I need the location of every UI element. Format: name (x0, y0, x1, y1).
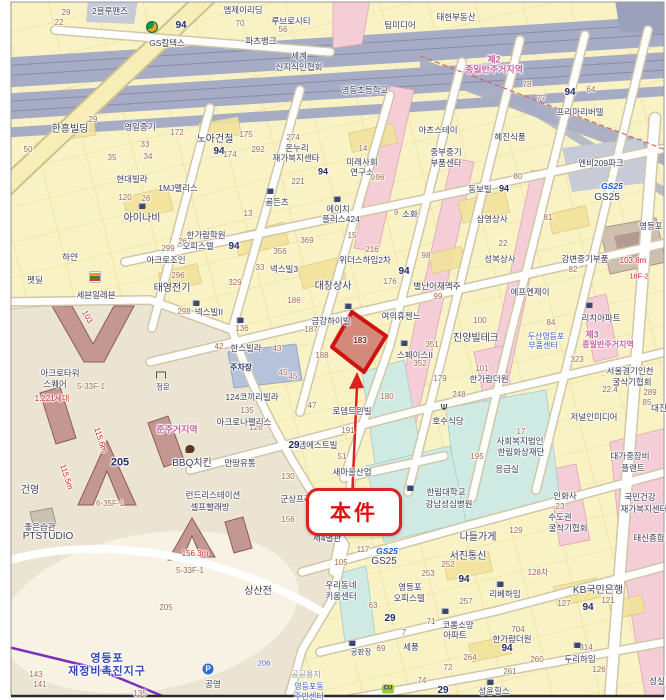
map-canvas[interactable] (0, 0, 666, 700)
subject-callout: 本件 (306, 488, 402, 536)
map-screenshot: 29222블루팬즈엠제이리딩루브로시티947056GS칼텍스파츠뱅크세계신지식인… (0, 0, 666, 700)
